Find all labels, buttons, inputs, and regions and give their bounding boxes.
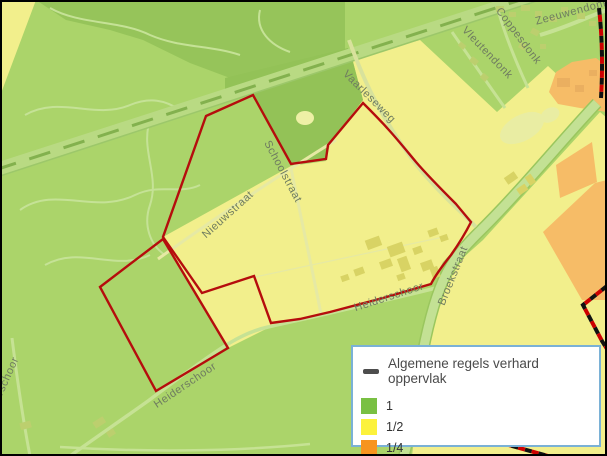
swatch-orange-icon bbox=[361, 440, 377, 456]
legend-item-label: 1 bbox=[386, 399, 393, 413]
legend-item: 1/4 bbox=[361, 440, 589, 456]
legend-item: 1 bbox=[361, 398, 589, 414]
legend-item-label: 1/4 bbox=[386, 441, 403, 455]
swatch-yellow-icon bbox=[361, 419, 377, 435]
legend-title: Algemene regels verhard oppervlak bbox=[388, 356, 589, 386]
swatch-green-icon bbox=[361, 398, 377, 414]
legend-panel: Algemene regels verhard oppervlak 1 1/2 … bbox=[351, 345, 601, 447]
map-viewport[interactable]: Vaarleseweg Schoolstraat Nieuwstraat Hei… bbox=[0, 0, 607, 456]
legend-item: 1/2 bbox=[361, 419, 589, 435]
legend-item-label: 1/2 bbox=[386, 420, 403, 434]
legend-title-row: Algemene regels verhard oppervlak bbox=[361, 356, 589, 386]
line-symbol-icon bbox=[363, 369, 379, 374]
